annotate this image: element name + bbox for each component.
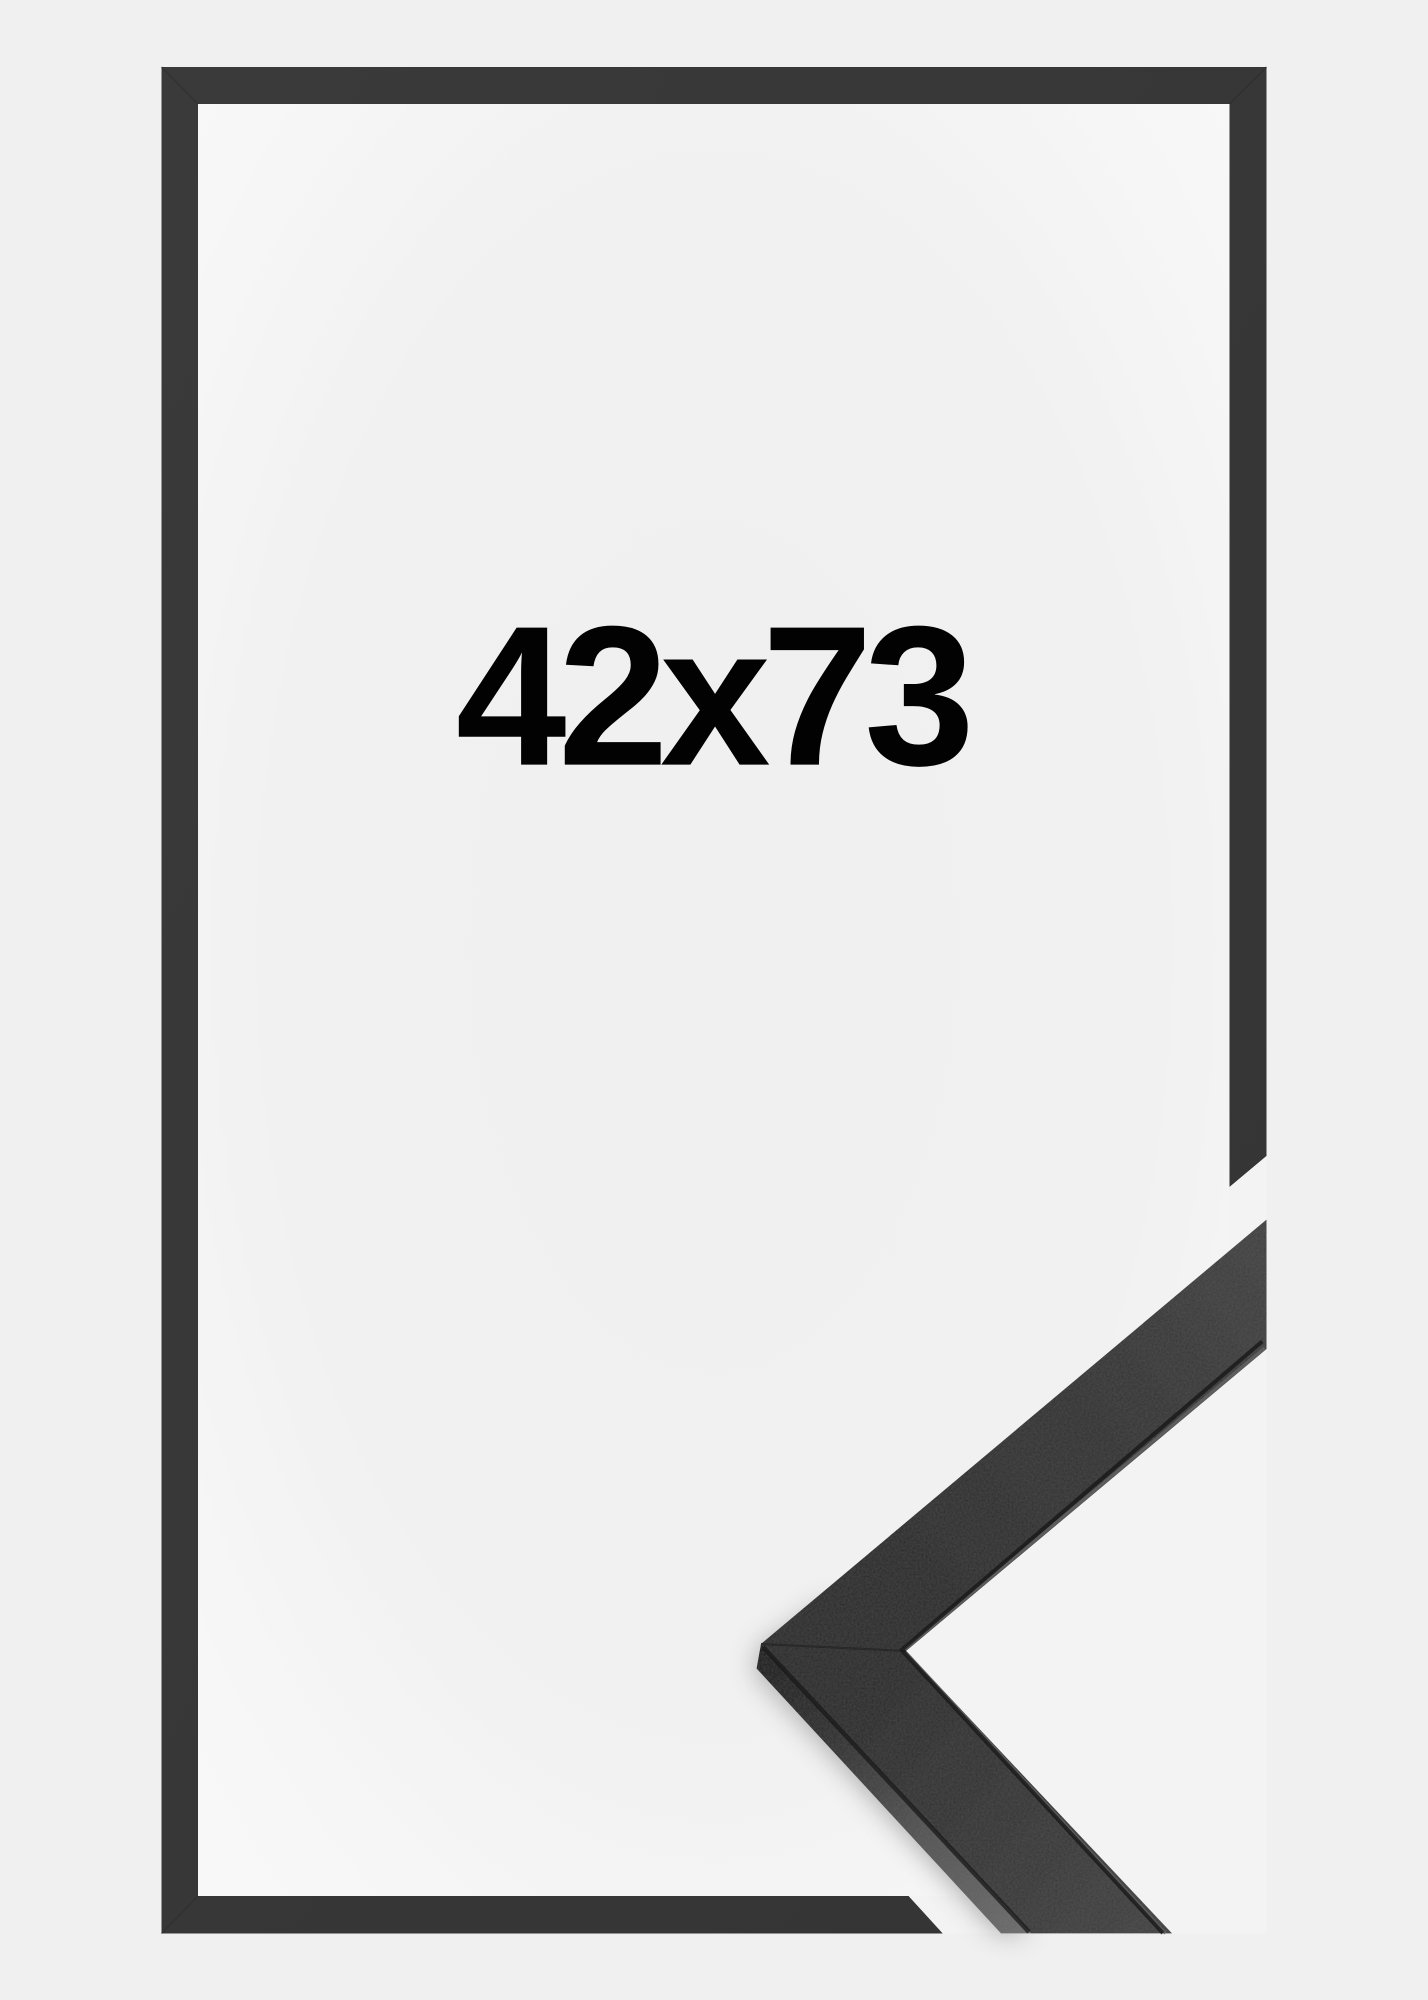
- svg-text:42x73: 42x73: [456, 586, 968, 808]
